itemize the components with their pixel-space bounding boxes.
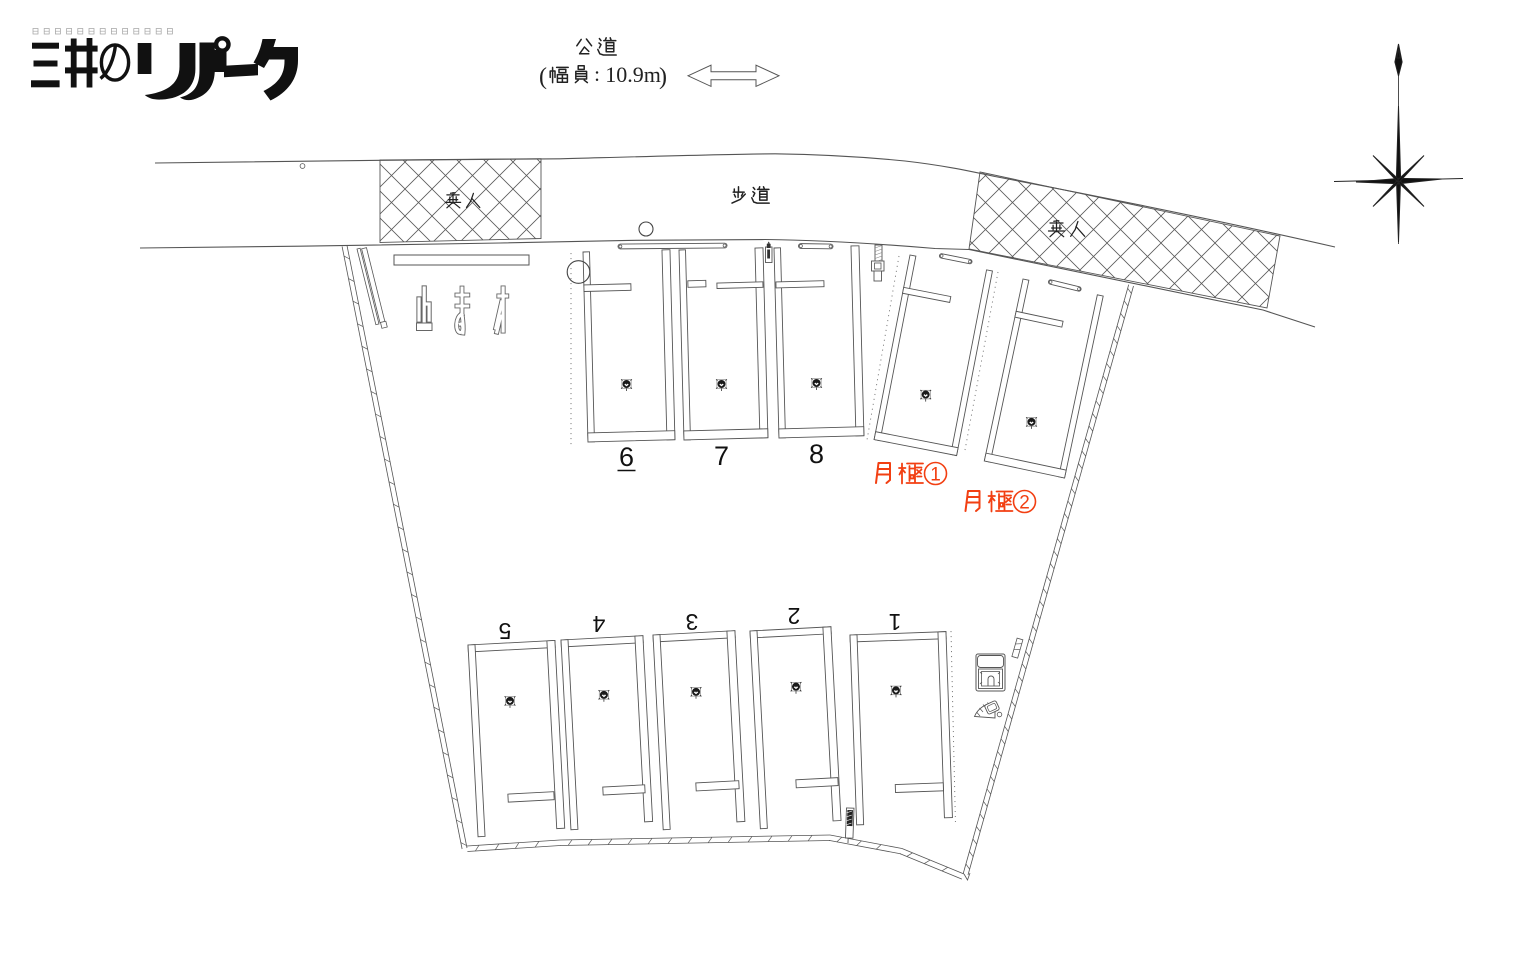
svg-text:10.9m: 10.9m — [605, 62, 661, 87]
svg-text::: : — [594, 62, 600, 86]
svg-text:5: 5 — [499, 618, 512, 644]
svg-text:1: 1 — [930, 465, 941, 486]
svg-text:6: 6 — [619, 442, 634, 472]
svg-text:): ) — [659, 64, 667, 90]
svg-text:3: 3 — [686, 609, 699, 635]
svg-text:8: 8 — [809, 439, 824, 469]
svg-text:2: 2 — [1019, 493, 1030, 514]
svg-text:7: 7 — [714, 441, 729, 471]
svg-text:2: 2 — [788, 603, 801, 629]
svg-text:4: 4 — [592, 611, 605, 637]
svg-text:1: 1 — [889, 609, 902, 635]
svg-text:(: ( — [539, 64, 547, 90]
